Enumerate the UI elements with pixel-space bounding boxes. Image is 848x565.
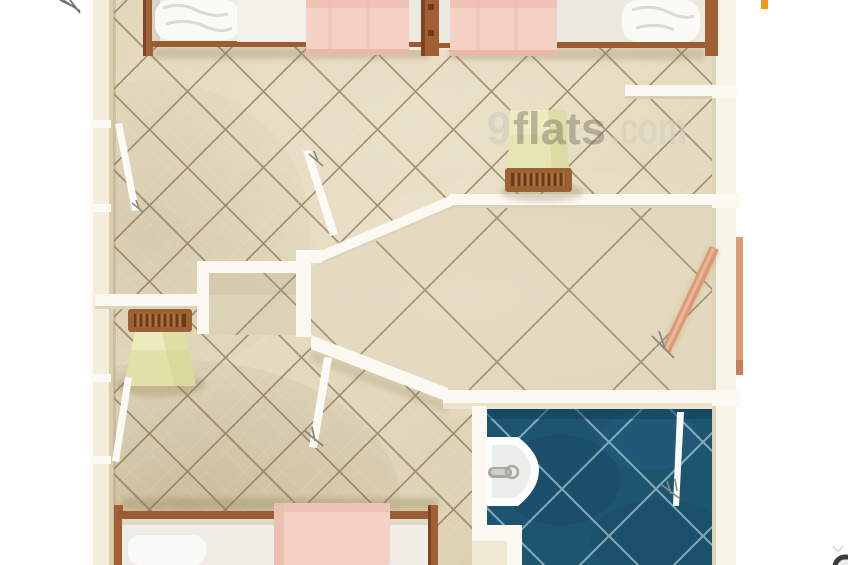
svg-text:9: 9 <box>487 103 511 154</box>
svg-text:flats: flats <box>513 103 606 154</box>
svg-text:.com: .com <box>611 103 687 154</box>
